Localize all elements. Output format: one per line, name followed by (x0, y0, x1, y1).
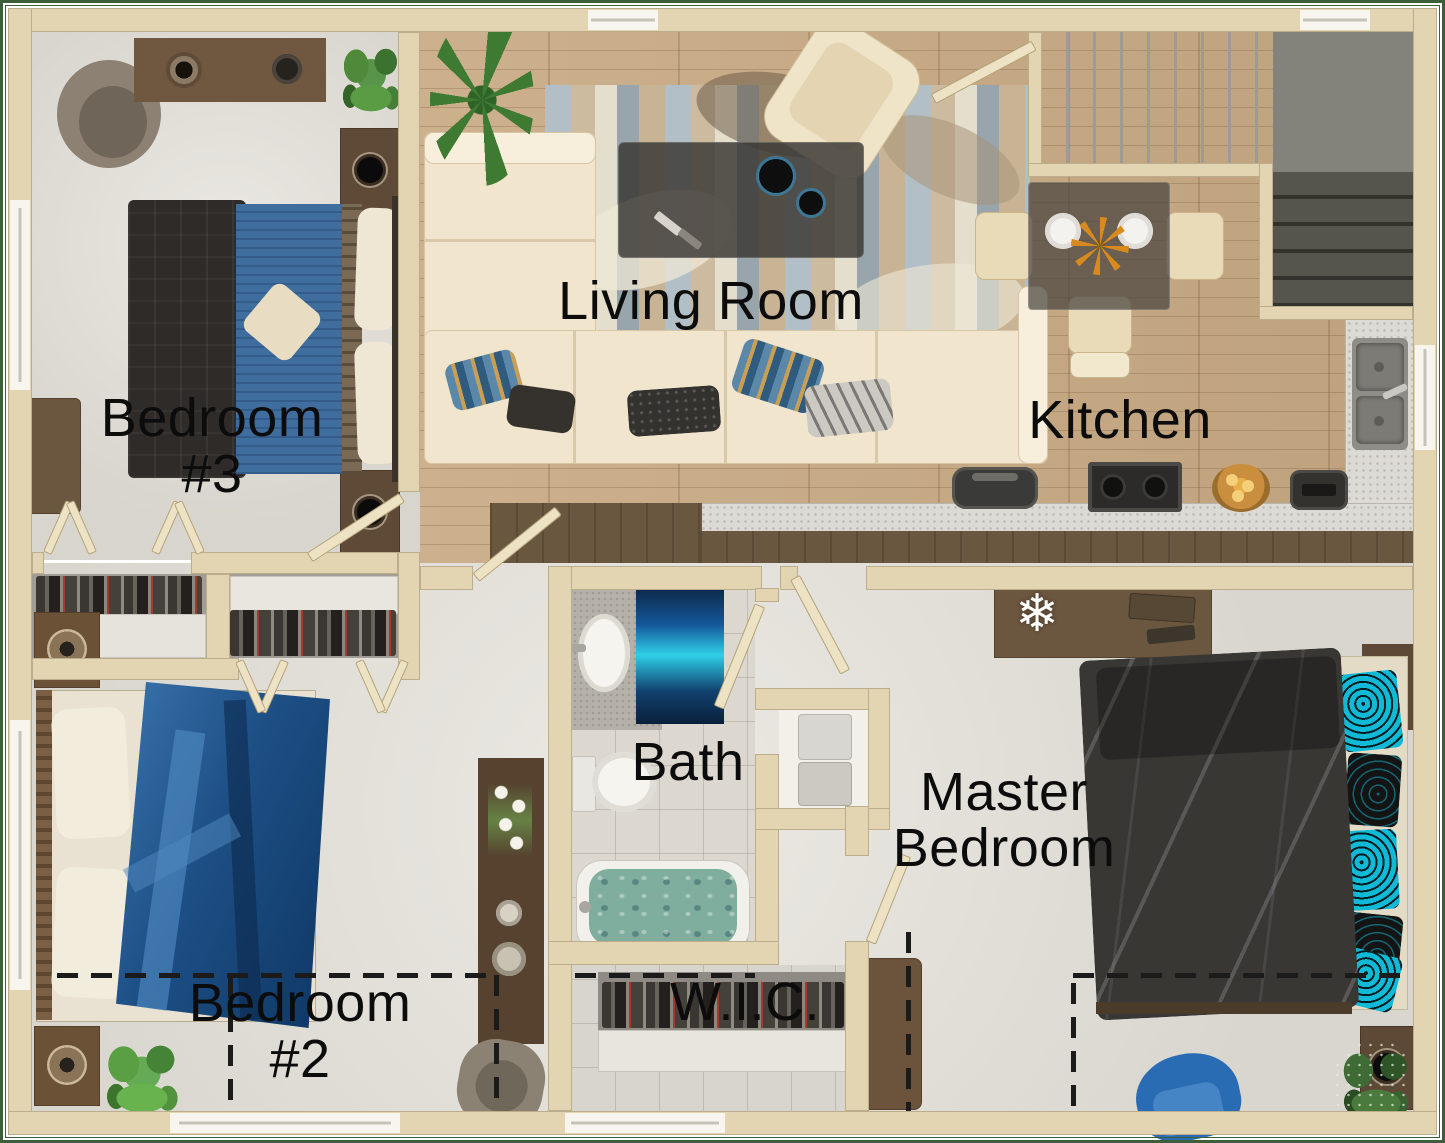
wall-bedroom2-top (32, 658, 239, 680)
window-glass (571, 1122, 718, 1125)
wall-bath-bottom (548, 941, 779, 965)
wall-main-s3 (866, 566, 1413, 590)
wall-bath-left (548, 566, 572, 1111)
window-glass (1303, 19, 1367, 22)
armchair-cushion (784, 36, 900, 156)
sofa-pillow (627, 385, 722, 437)
closet-shoes-row (36, 576, 202, 616)
master-label-line2: Bedroom (893, 820, 1116, 876)
master-label-line1: Master (893, 764, 1116, 820)
kitchen-label: Kitchen (1028, 392, 1212, 448)
window-top-living (588, 10, 658, 30)
window-right-kitchen (1415, 345, 1435, 450)
candle-bowl (1212, 464, 1270, 512)
master-desk: ❄ (994, 582, 1212, 658)
wall-main-s2 (548, 566, 762, 590)
sofa-pillow (804, 378, 895, 439)
dining-chair-back (1070, 352, 1130, 378)
window-glass (19, 208, 22, 383)
floor-plan: Living Room Kitchen (0, 0, 1445, 1143)
wall-stair-bottom2 (1259, 306, 1413, 320)
wic-shelf-front (598, 1030, 850, 1072)
wall-bath-right-lower (755, 754, 779, 965)
window-glass (591, 19, 655, 22)
bedroom2-nightstand-bottom (34, 1026, 100, 1106)
wall-stair-bottom1 (1028, 163, 1273, 177)
bath-sink (578, 614, 630, 692)
burner (1142, 474, 1168, 500)
wall-bath-right-stub (755, 588, 779, 602)
sink-drain (1374, 362, 1384, 372)
flower-centerpiece (1071, 217, 1129, 275)
master-pillow-teal (1336, 669, 1404, 753)
wall-stair-vertical (1259, 163, 1273, 320)
dashed-line (1071, 983, 1076, 1111)
master-label: Master Bedroom (893, 764, 1116, 876)
bedroom3-label-line2: #3 (101, 446, 324, 502)
bedroom3-plant (334, 36, 408, 122)
desk-item (1146, 625, 1195, 645)
wall-right (1413, 8, 1437, 1135)
candle (1242, 480, 1254, 492)
coffee-table (618, 142, 864, 258)
bedroom2-dresser (478, 758, 544, 1044)
bedroom2-bed (36, 690, 314, 1020)
window-glass (1424, 349, 1427, 446)
dashed-line (906, 932, 911, 1111)
window-glass (179, 1122, 391, 1125)
bifold-door-marker (148, 502, 208, 558)
bedroom3-label-line1: Bedroom (101, 390, 324, 446)
remote-control (677, 228, 702, 250)
pot-handle (972, 473, 1018, 481)
kitchen-cabinet-front (700, 531, 1413, 563)
wall-bedroom3-bottom-b (191, 552, 398, 574)
table-lamp (47, 1045, 87, 1085)
staircase-lower (1273, 172, 1413, 306)
master-pillow-black (1344, 752, 1403, 828)
window-left-bedroom2 (10, 720, 30, 990)
stool-seat (472, 1056, 532, 1116)
burner (1100, 474, 1126, 500)
bath-rug (636, 586, 724, 724)
closet-shoes-row (230, 610, 396, 656)
bifold-bar (66, 500, 97, 555)
bedroom3-bench (27, 398, 81, 514)
bed2-headboard-slats (36, 690, 52, 1020)
bedroom3-desk (134, 38, 326, 102)
nightstand-speaker (357, 157, 383, 183)
linen-towel-stack (798, 714, 852, 760)
master-bed (1090, 652, 1412, 1018)
candle (1232, 490, 1244, 502)
bath-label: Bath (631, 734, 744, 790)
desk-bowl (272, 54, 302, 84)
window-glass (19, 731, 22, 979)
window-bottom-wic (565, 1113, 725, 1133)
tub-water (589, 869, 737, 945)
dining-table (1028, 182, 1170, 310)
bifold-bar (235, 659, 266, 714)
bed2-pillow (51, 706, 132, 840)
master-bed-footboard (1096, 1002, 1352, 1014)
orchid-flowers (488, 774, 532, 866)
bifold-bar (355, 659, 386, 714)
bifold-bar (174, 500, 205, 555)
pot (952, 467, 1038, 509)
wall-main-s1 (420, 566, 473, 590)
kitchen-sink (1352, 338, 1408, 450)
wall-bedroom3-right (398, 32, 420, 492)
bedroom3-label: Bedroom #3 (101, 390, 324, 502)
dining-chair (975, 212, 1033, 280)
window-left-bedroom3 (10, 200, 30, 390)
wall-linen-bottom (755, 808, 890, 830)
bifold-door-marker (352, 656, 412, 712)
wic-label: W.I.C. (670, 974, 820, 1030)
toaster-slot (1302, 484, 1336, 496)
speaker-on-table (799, 191, 823, 215)
bifold-door-marker (40, 502, 100, 558)
window-bottom-bedroom2 (170, 1113, 400, 1133)
sofa-pillow (505, 384, 576, 435)
dashed-line (1073, 973, 1413, 978)
candle-glass (492, 942, 526, 976)
candle-glass (496, 900, 522, 926)
staircase-up (1042, 32, 1259, 163)
wall-top (8, 8, 1437, 32)
bedroom2-label: Bedroom #2 (189, 975, 412, 1087)
bath-faucet (570, 644, 586, 652)
living-room-label: Living Room (558, 273, 864, 329)
window-top-stairs (1300, 10, 1370, 30)
speaker-on-table (759, 159, 793, 193)
tub-faucet (579, 901, 591, 913)
closet-shelf (230, 576, 398, 614)
stove-cooktop (1088, 462, 1182, 512)
bedroom2-label-line1: Bedroom (189, 975, 412, 1031)
dining-chair (1166, 212, 1224, 280)
palm-plant (430, 14, 534, 186)
bedroom2-label-line2: #2 (189, 1031, 412, 1087)
desk-keyboard (1128, 593, 1196, 624)
sink-drain (1374, 416, 1384, 426)
snowflake-decor: ❄ (1009, 585, 1065, 641)
wall-hall-master (845, 806, 869, 856)
desk-speaker (166, 52, 202, 88)
wall-closet-divider (206, 574, 230, 660)
wall-wic-right (845, 941, 869, 1111)
linen-towel-stack (798, 762, 852, 806)
candle (1226, 474, 1238, 486)
toaster (1290, 470, 1348, 510)
bathtub (576, 860, 750, 954)
master-comforter-fold (1096, 656, 1340, 760)
stair-landing (1273, 32, 1413, 172)
bifold-door-marker (232, 656, 292, 712)
dashed-line (494, 975, 499, 1111)
